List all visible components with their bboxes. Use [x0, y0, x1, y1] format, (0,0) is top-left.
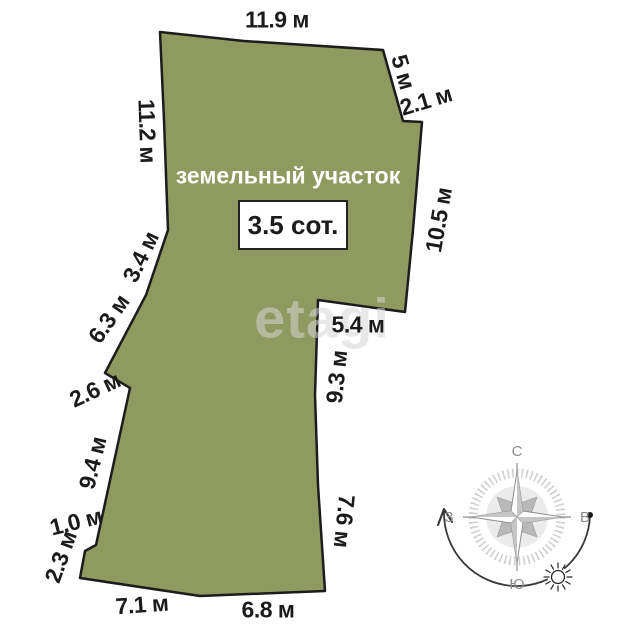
compass-label-south: Ю	[509, 576, 524, 593]
compass-label-west: З	[444, 509, 453, 526]
land-plot-diagram: etagi земельный участок 3.5 сот. 11.9 м …	[0, 0, 640, 640]
compass-rose: С З В Ю	[437, 437, 597, 597]
compass-label-north: С	[512, 443, 523, 460]
dimension-label-bottom-right: 6.8 м	[242, 599, 295, 622]
sun-icon	[544, 563, 572, 591]
dimension-label-right-step: 5.4 м	[332, 314, 385, 337]
dimension-label-left-upper: 11.2 м	[134, 99, 159, 164]
dimension-label-right-middle: 9.3 м	[323, 349, 351, 404]
dimension-label-top: 11.9 м	[245, 9, 309, 32]
dimension-label-bottom-left: 7.1 м	[115, 592, 169, 619]
compass-label-east: В	[580, 509, 590, 526]
area-value: 3.5 сот.	[248, 210, 339, 241]
area-box: 3.5 сот.	[238, 200, 348, 250]
plot-title: земельный участок	[176, 163, 401, 190]
dimension-label-right-lower: 7.6 м	[330, 493, 358, 548]
